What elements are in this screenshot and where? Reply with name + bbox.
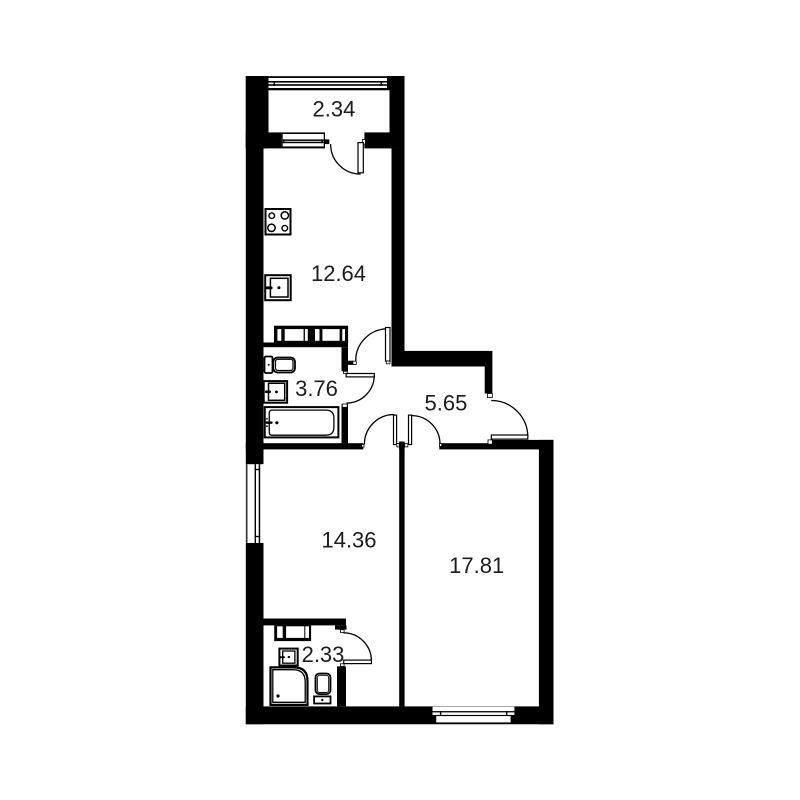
svg-text:17.81: 17.81: [449, 553, 504, 578]
svg-text:3.76: 3.76: [295, 376, 338, 401]
svg-text:14.36: 14.36: [321, 528, 376, 553]
svg-text:12.64: 12.64: [311, 261, 366, 286]
svg-text:5.65: 5.65: [424, 390, 467, 415]
svg-text:2.33: 2.33: [302, 642, 345, 667]
svg-text:2.34: 2.34: [312, 96, 355, 121]
